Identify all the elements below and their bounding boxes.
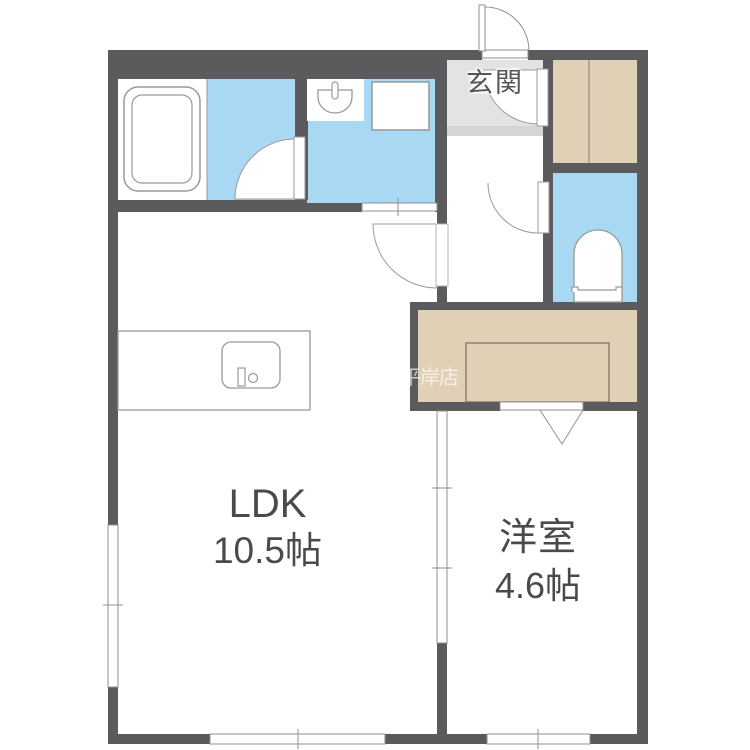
front-door-threshold — [482, 50, 528, 58]
wall-top-thick — [108, 50, 435, 79]
entrance-label: 玄関 — [448, 68, 542, 99]
entrance-step — [447, 126, 543, 136]
wall-hall-ldk-upper — [437, 212, 447, 224]
wall-partition-lower — [437, 643, 447, 734]
wall-below-closet-left — [410, 402, 500, 411]
western-room-name: 洋室 — [438, 517, 638, 561]
front-door-swing-icon — [485, 7, 529, 50]
ldk-name: LDK — [155, 481, 380, 527]
closet-opening — [500, 402, 583, 410]
wall-washroom-entrance — [435, 50, 447, 212]
washroom-opening — [362, 203, 437, 211]
window-left — [108, 525, 118, 687]
wall-top-entrance-right — [528, 50, 648, 60]
ldk-door-leaf — [436, 224, 448, 286]
kitchen-counter — [118, 331, 310, 410]
ldk-label: LDK 10.5帖 — [155, 481, 380, 573]
washbasin-faucet-icon — [332, 82, 338, 99]
kitchen-knob-icon — [249, 374, 258, 383]
wall-below-washroom — [307, 203, 362, 212]
bathroom-door-leaf — [294, 137, 305, 199]
watermark: 平岸店 — [401, 361, 458, 390]
wall-hall-ldk-lower — [437, 285, 447, 310]
wall-right — [637, 50, 648, 744]
floor-plan-drawing — [0, 0, 750, 750]
ldk-door-swing-icon — [373, 224, 437, 288]
wall-below-bathroom — [108, 200, 307, 212]
wall-below-closet-right — [583, 402, 648, 411]
kitchen-faucet-icon — [238, 368, 245, 386]
floor-plan: 玄関 LDK 10.5帖 洋室 4.6帖 平岸店 — [0, 0, 750, 750]
toilet-door-leaf — [538, 182, 549, 233]
toilet-door-swing-icon — [488, 183, 538, 233]
wall-top-entrance-left — [447, 50, 482, 60]
ldk-size: 10.5帖 — [155, 530, 380, 573]
wall-closet-toilet — [553, 163, 637, 173]
washing-machine-icon — [372, 82, 429, 130]
front-door-leaf — [479, 5, 485, 51]
western-room-size: 4.6帖 — [438, 565, 638, 606]
closet-upper-floor — [553, 60, 637, 163]
bathtub-icon — [124, 87, 200, 191]
folding-door-icon — [540, 410, 583, 444]
western-room-label: 洋室 4.6帖 — [438, 517, 638, 606]
